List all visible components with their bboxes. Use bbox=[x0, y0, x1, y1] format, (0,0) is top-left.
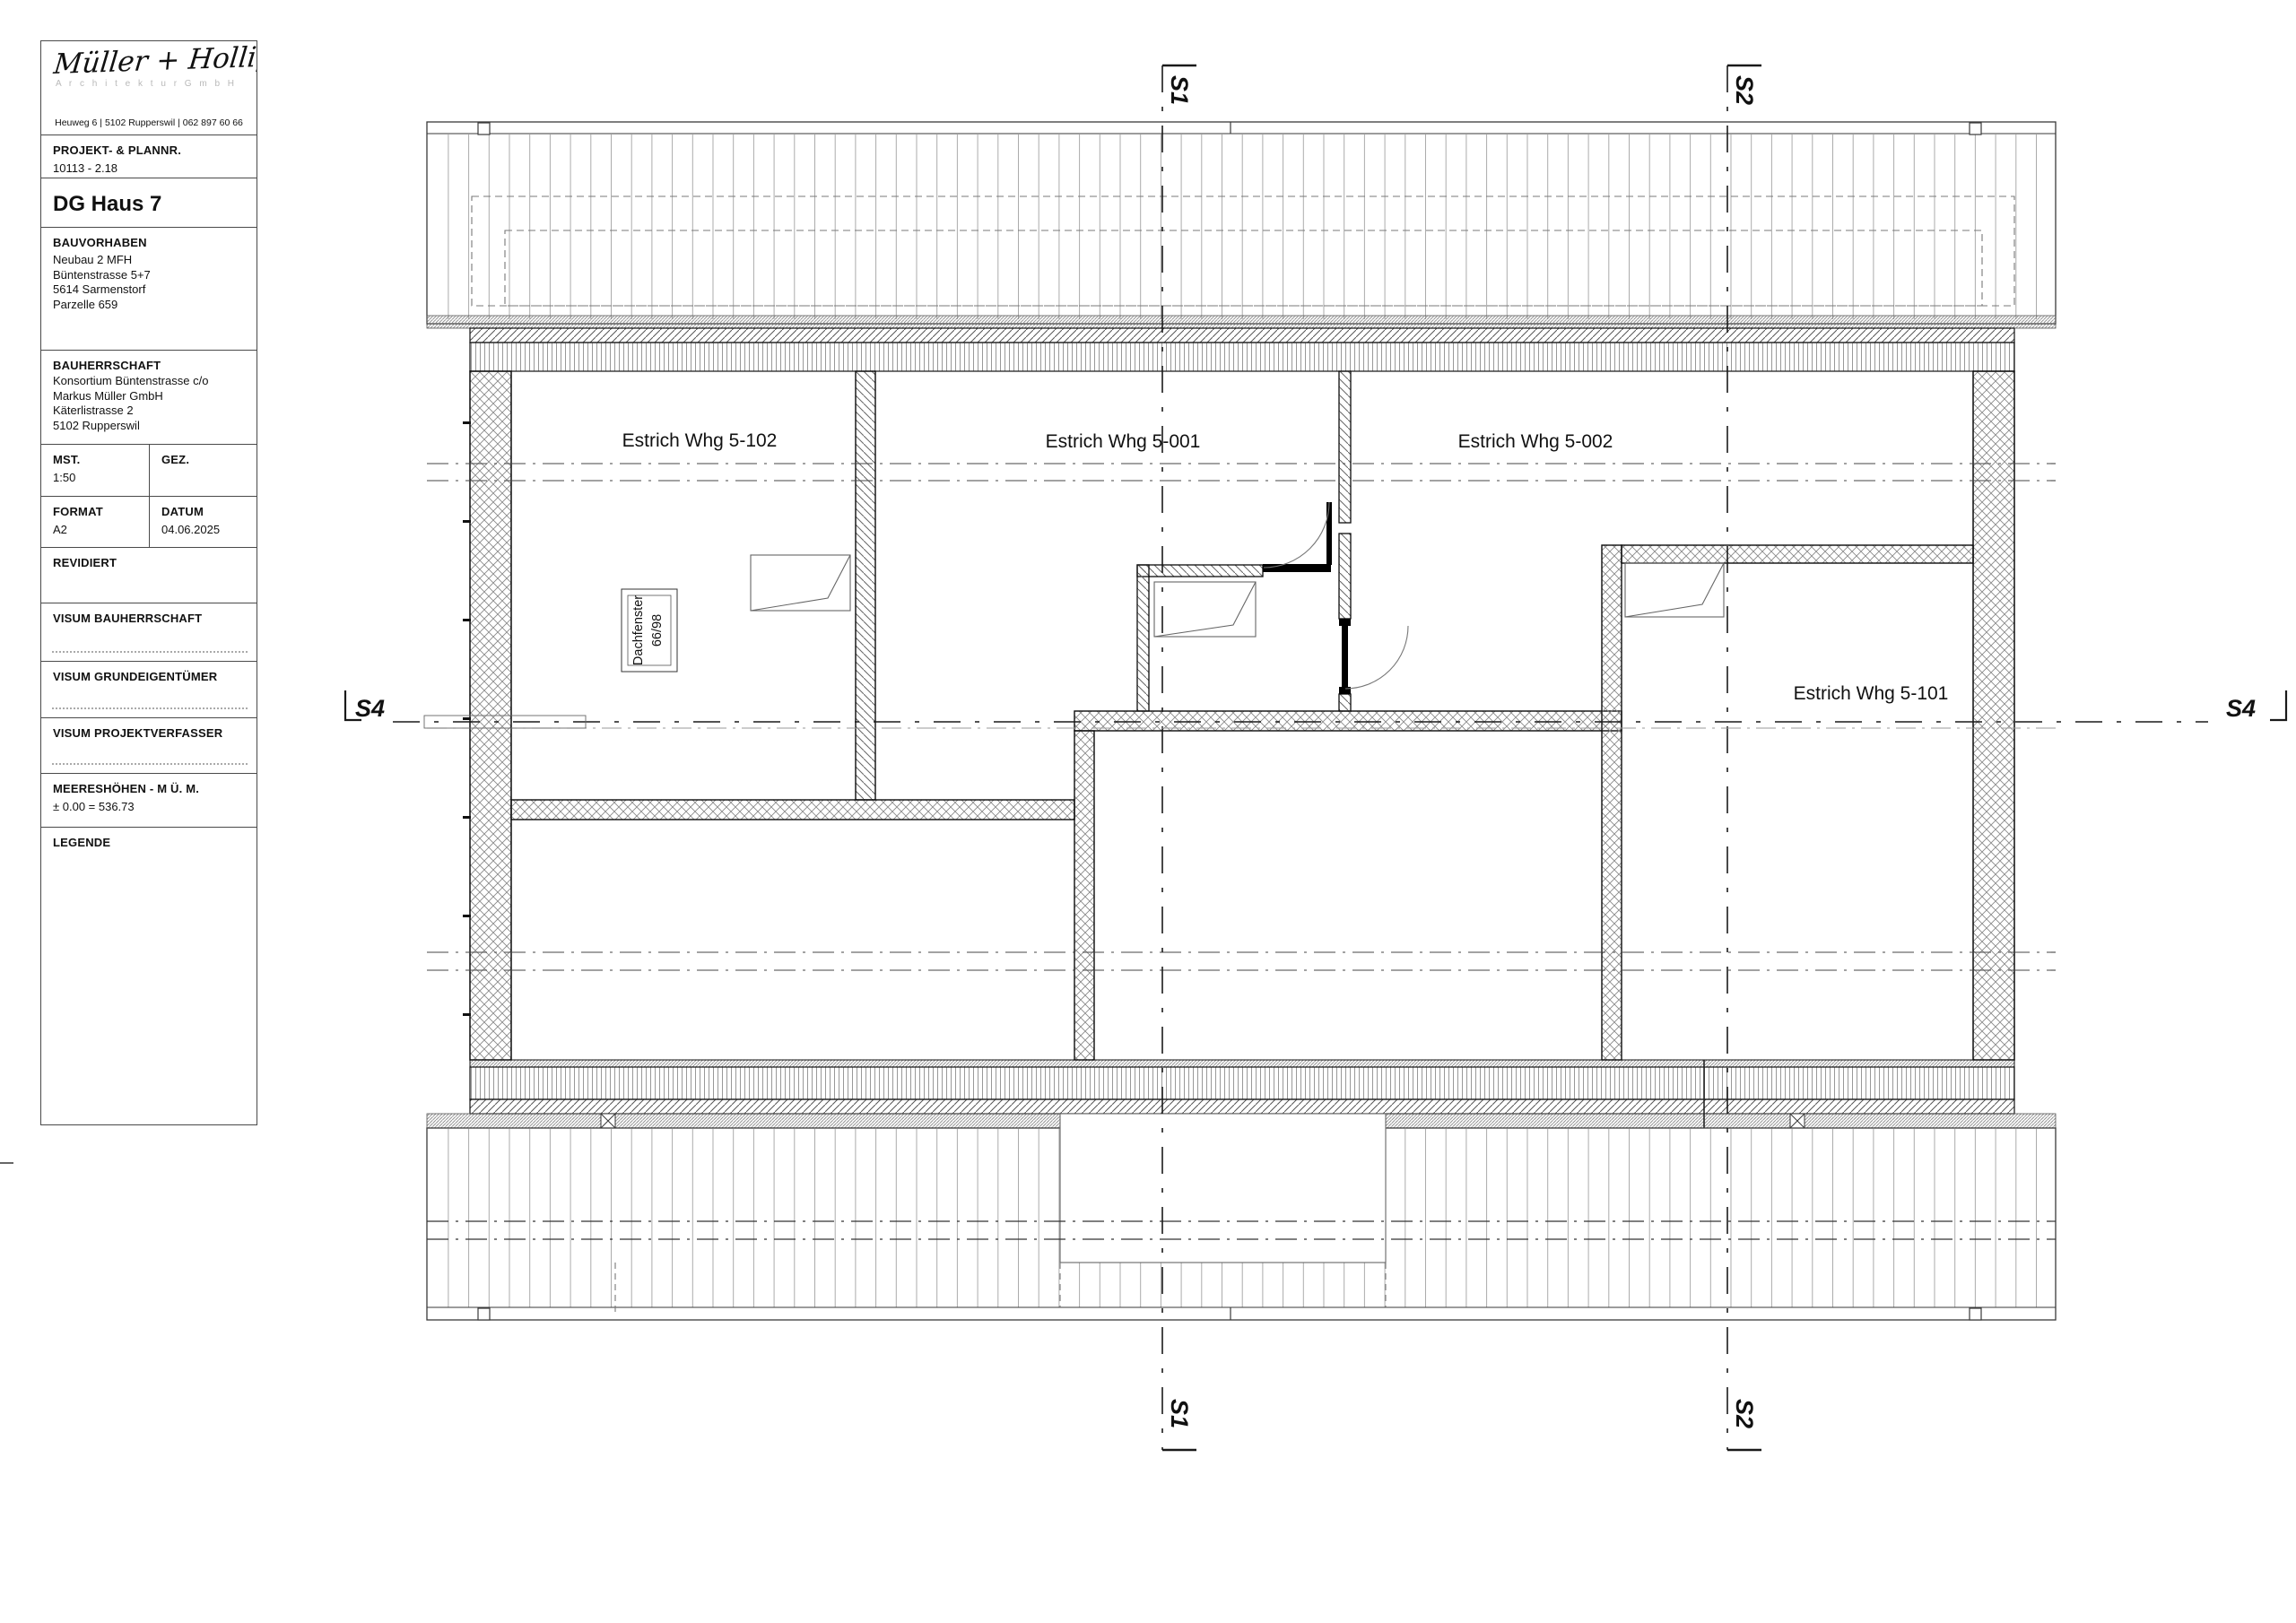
format-section: FORMAT A2 DATUM 04.06.2025 bbox=[41, 497, 257, 548]
project-number-value: 10113 - 2.18 bbox=[53, 161, 249, 175]
bauvorhaben-line: Parzelle 659 bbox=[53, 298, 249, 313]
bauherrschaft-line: Markus Müller GmbH bbox=[53, 389, 249, 404]
section-label-s2-top: S2 bbox=[1731, 75, 1758, 105]
logo-section: Müller + Holliger A r c h i t e k t u r … bbox=[41, 41, 257, 135]
format-value: A2 bbox=[53, 523, 149, 536]
project-number-label: PROJEKT- & PLANNR. bbox=[53, 143, 249, 157]
room-label-5001: Estrich Whg 5-001 bbox=[1046, 431, 1201, 452]
bauvorhaben-line: Neubau 2 MFH bbox=[53, 253, 249, 268]
mst-label: MST. bbox=[53, 453, 149, 466]
door-north bbox=[1264, 502, 1332, 568]
section-label-s2-bottom: S2 bbox=[1731, 1399, 1758, 1428]
section-label-s1-top: S1 bbox=[1166, 75, 1193, 105]
bauherrschaft-label: BAUHERRSCHAFT bbox=[53, 359, 249, 372]
meereshoehen-value: ± 0.00 = 536.73 bbox=[53, 800, 249, 813]
skylight-label-line1: Dachfenster bbox=[631, 595, 646, 665]
signature-line bbox=[52, 651, 248, 653]
scale-section: MST. 1:50 GEZ. bbox=[41, 445, 257, 497]
revidiert-label: REVIDIERT bbox=[53, 556, 249, 569]
plan-title: DG Haus 7 bbox=[53, 192, 249, 217]
legende-label: LEGENDE bbox=[53, 836, 249, 849]
bauherrschaft-line: Käterlistrasse 2 bbox=[53, 404, 249, 419]
signature-line bbox=[52, 763, 248, 765]
mst-value: 1:50 bbox=[53, 471, 149, 484]
revidiert-section: REVIDIERT bbox=[41, 548, 257, 603]
skylight-label-line2: 66/98 bbox=[650, 614, 665, 647]
room-label-5002: Estrich Whg 5-002 bbox=[1458, 431, 1613, 452]
visum-bauherrschaft-label: VISUM BAUHERRSCHAFT bbox=[53, 612, 249, 625]
bauherrschaft-line: Konsortium Büntenstrasse c/o bbox=[53, 374, 249, 389]
floorplan-drawing: Dachfenster 66/98 S1 S1 S2 S2 bbox=[0, 0, 2296, 1623]
datum-label: DATUM bbox=[161, 505, 257, 518]
bauvorhaben-section: BAUVORHABEN Neubau 2 MFH Büntenstrasse 5… bbox=[41, 228, 257, 351]
skylight-5001 bbox=[1154, 582, 1256, 637]
roof-marker-square-nw bbox=[478, 123, 490, 135]
bauherrschaft-line: 5102 Rupperswil bbox=[53, 419, 249, 434]
gez-label: GEZ. bbox=[161, 453, 257, 466]
signature-line bbox=[52, 707, 248, 709]
roof-band-south bbox=[427, 1114, 2056, 1320]
bauherrschaft-section: BAUHERRSCHAFT Konsortium Büntenstrasse c… bbox=[41, 351, 257, 445]
partition-5102-5001 bbox=[856, 371, 875, 800]
architect-address: Heuweg 6 | 5102 Rupperswil | 062 897 60 … bbox=[41, 117, 257, 128]
section-label-s4-right: S4 bbox=[2226, 695, 2256, 722]
roof-marker-square-sw bbox=[478, 1308, 490, 1320]
room-label-5102: Estrich Whg 5-102 bbox=[622, 430, 778, 451]
wall-east bbox=[1973, 371, 2014, 1060]
architect-logo-subtitle: A r c h i t e k t u r G m b H bbox=[56, 79, 257, 89]
partition-horizontal bbox=[511, 800, 1074, 820]
project-number-section: PROJEKT- & PLANNR. 10113 - 2.18 bbox=[41, 135, 257, 178]
annex-room bbox=[1137, 371, 1408, 711]
roof-marker-square-se bbox=[1970, 1308, 1981, 1320]
visum-projektverfasser-section: VISUM PROJEKTVERFASSER bbox=[41, 718, 257, 774]
title-block: Müller + Holliger A r c h i t e k t u r … bbox=[40, 40, 257, 1125]
bauvorhaben-line: 5614 Sarmenstorf bbox=[53, 282, 249, 298]
door-threshold bbox=[1263, 564, 1331, 572]
datum-value: 04.06.2025 bbox=[161, 523, 257, 536]
bauvorhaben-line: Büntenstrasse 5+7 bbox=[53, 268, 249, 283]
legende-section: LEGENDE bbox=[41, 828, 257, 1124]
door-east bbox=[1339, 619, 1408, 694]
room-label-5101: Estrich Whg 5-101 bbox=[1794, 683, 1949, 704]
skylight-5102 bbox=[751, 555, 850, 611]
room-5101-top-wall bbox=[1622, 545, 1973, 563]
visum-bauherrschaft-section: VISUM BAUHERRSCHAFT bbox=[41, 603, 257, 662]
plan-sheet: Dachfenster 66/98 S1 S1 S2 S2 bbox=[0, 0, 2296, 1623]
roof-band-north bbox=[427, 122, 2056, 324]
bauvorhaben-label: BAUVORHABEN bbox=[53, 236, 249, 249]
roof-terrace-cutout bbox=[1060, 1114, 1386, 1263]
meereshoehen-section: MEERESHÖHEN - M Ü. M. ± 0.00 = 536.73 bbox=[41, 774, 257, 828]
visum-grundeigentuemer-label: VISUM GRUNDEIGENTÜMER bbox=[53, 670, 249, 683]
wall-north bbox=[427, 316, 2056, 371]
visum-grundeigentuemer-section: VISUM GRUNDEIGENTÜMER bbox=[41, 662, 257, 718]
roof-marker-square-ne bbox=[1970, 123, 1981, 135]
format-label: FORMAT bbox=[53, 505, 149, 518]
visum-projektverfasser-label: VISUM PROJEKTVERFASSER bbox=[53, 726, 249, 740]
skylight-5101 bbox=[1625, 563, 1724, 617]
section-label-s4-left: S4 bbox=[355, 695, 385, 722]
architect-logo: Müller + Holliger bbox=[52, 41, 257, 81]
skylight-label-box: Dachfenster 66/98 bbox=[622, 589, 677, 672]
plan-title-section: DG Haus 7 bbox=[41, 178, 257, 228]
section-label-s1-bottom: S1 bbox=[1166, 1399, 1193, 1428]
meereshoehen-label: MEERESHÖHEN - M Ü. M. bbox=[53, 782, 249, 795]
